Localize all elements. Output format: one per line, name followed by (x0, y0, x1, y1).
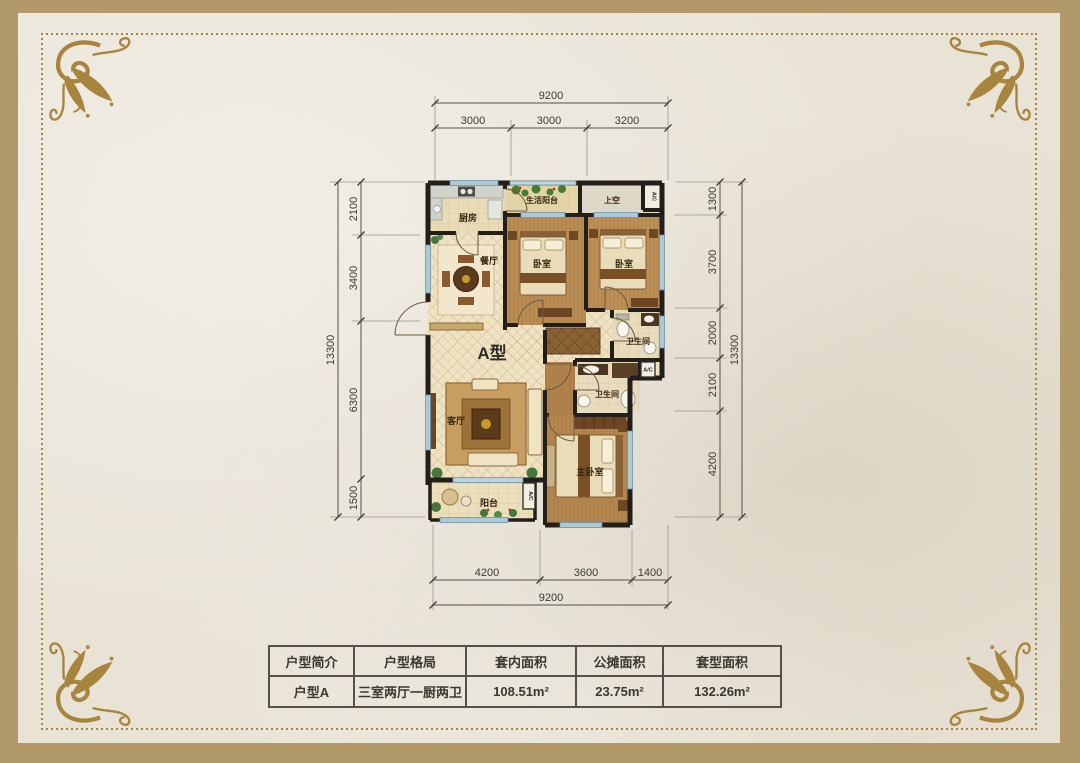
dim-bottom-seg: 4200 (475, 567, 499, 579)
dim-bottom-total: 9200 (539, 592, 563, 604)
table-row: 户型A 三室两厅一厨两卫 108.51m² 23.75m² 132.26m² (269, 676, 781, 707)
floor-plan: A/C A/C A/C 厨房 生活阳台 上空 卧室 卧室 餐厅 卫生间 卫生间 … (395, 181, 665, 528)
header-unit-intro: 户型简介 (269, 646, 354, 676)
dim-bottom-seg: 1400 (638, 567, 662, 579)
hall-mat (546, 328, 600, 354)
dim-top-seg: 3200 (615, 115, 639, 127)
room-label-balcony: 阳台 (480, 497, 498, 508)
floor-plan-page: 9200 3000 3000 3200 13300 2100 3400 6300… (0, 0, 1080, 763)
dining-table-icon (431, 234, 494, 315)
ac-label: A/C (643, 368, 653, 374)
dim-top-total: 9200 (539, 90, 563, 102)
header-unit-layout: 户型格局 (354, 646, 466, 676)
header-total-area: 套型面积 (663, 646, 781, 676)
dim-right-total: 13300 (729, 335, 741, 366)
dim-right-seg: 1300 (707, 187, 719, 211)
cell-total-area: 132.26m² (663, 676, 781, 707)
dim-left-seg: 6300 (348, 388, 360, 412)
dim-right-seg: 2000 (707, 321, 719, 345)
header-shared-area: 公摊面积 (576, 646, 663, 676)
dim-right-seg: 4200 (707, 452, 719, 476)
dim-top-seg: 3000 (461, 115, 485, 127)
room-label-dining: 餐厅 (479, 255, 498, 266)
room-label-kitchen: 厨房 (459, 212, 477, 223)
dim-bottom-seg: 3600 (574, 567, 598, 579)
dim-left-seg: 1500 (348, 486, 360, 510)
room-label-void: 上空 (604, 195, 620, 205)
room-label-bedroom1: 卧室 (533, 258, 551, 269)
cell-unit-name: 户型A (269, 676, 354, 707)
unit-spec-table: 户型简介 户型格局 套内面积 公摊面积 套型面积 户型A 三室两厅一厨两卫 10… (268, 645, 782, 708)
dim-left-total: 13300 (325, 335, 337, 366)
header-inner-area: 套内面积 (466, 646, 576, 676)
dim-left-seg: 2100 (348, 197, 360, 221)
room-label-bath2: 卫生间 (595, 389, 619, 399)
dim-top-seg: 3000 (537, 115, 561, 127)
cell-unit-layout: 三室两厅一厨两卫 (354, 676, 466, 707)
dim-left-seg: 3400 (348, 266, 360, 290)
room-label-bath1: 卫生间 (626, 336, 650, 346)
table-header-row: 户型简介 户型格局 套内面积 公摊面积 套型面积 (269, 646, 781, 676)
room-label-living: 客厅 (446, 415, 465, 426)
unit-type-label: A型 (477, 343, 506, 363)
ac-label: A/C (651, 192, 657, 202)
sofa-icon (430, 379, 542, 479)
ac-label: A/C (527, 491, 533, 501)
dim-right-seg: 3700 (707, 250, 719, 274)
dim-right-seg: 2100 (707, 373, 719, 397)
room-label-master: 主卧室 (576, 466, 603, 477)
room-label-laundry-balcony: 生活阳台 (526, 195, 558, 205)
cell-inner-area: 108.51m² (466, 676, 576, 707)
room-label-bedroom2: 卧室 (615, 258, 633, 269)
cell-shared-area: 23.75m² (576, 676, 663, 707)
